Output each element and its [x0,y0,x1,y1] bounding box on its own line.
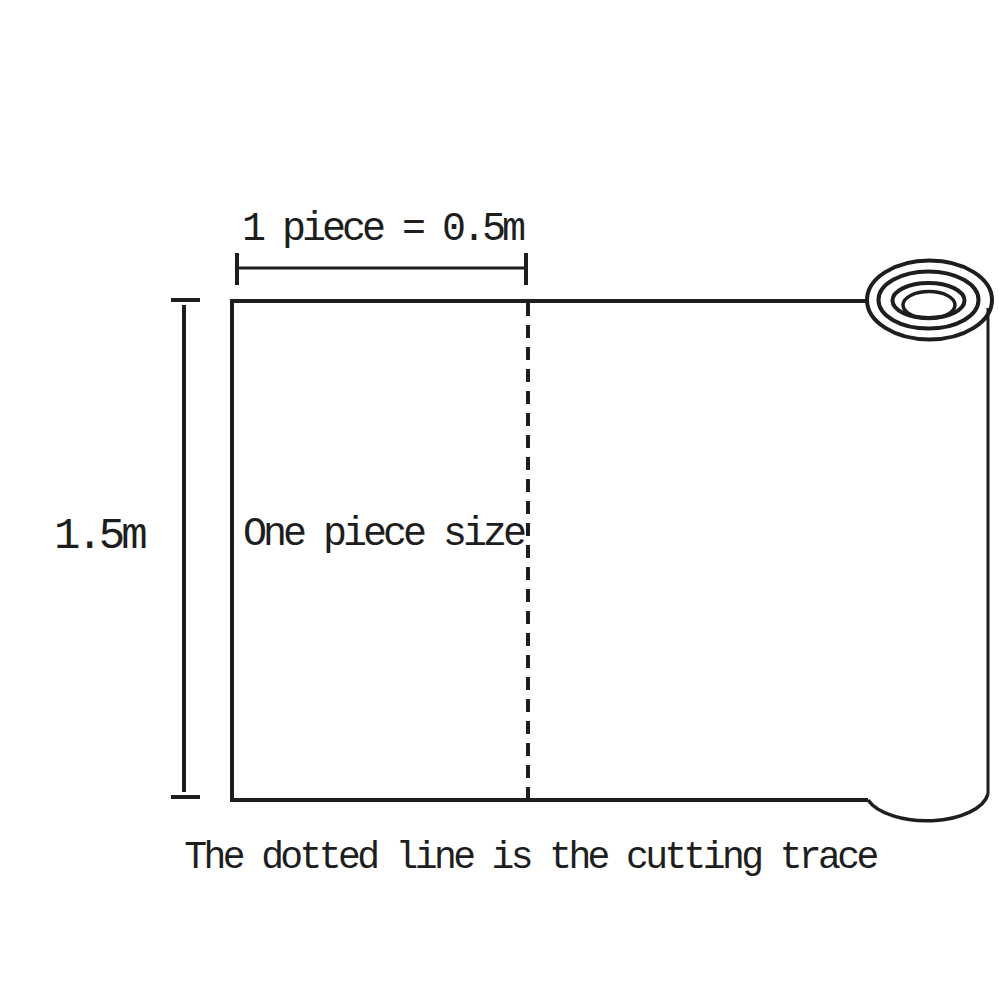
roll-bottom-curve [868,794,988,821]
piece-width-label: 1 piece = 0.5m [242,207,524,252]
roll-height-label: 1.5m [54,511,146,561]
cutting-trace-caption: The dotted line is the cutting trace [184,836,877,879]
diagram-svg: 1 piece = 0.5m 1.5m One piece size The d… [0,0,1000,1000]
roll-size-diagram: 1 piece = 0.5m 1.5m One piece size The d… [0,0,1000,1000]
roll-spiral-inner-ring [903,292,955,319]
piece-area-label: One piece size [243,512,525,557]
